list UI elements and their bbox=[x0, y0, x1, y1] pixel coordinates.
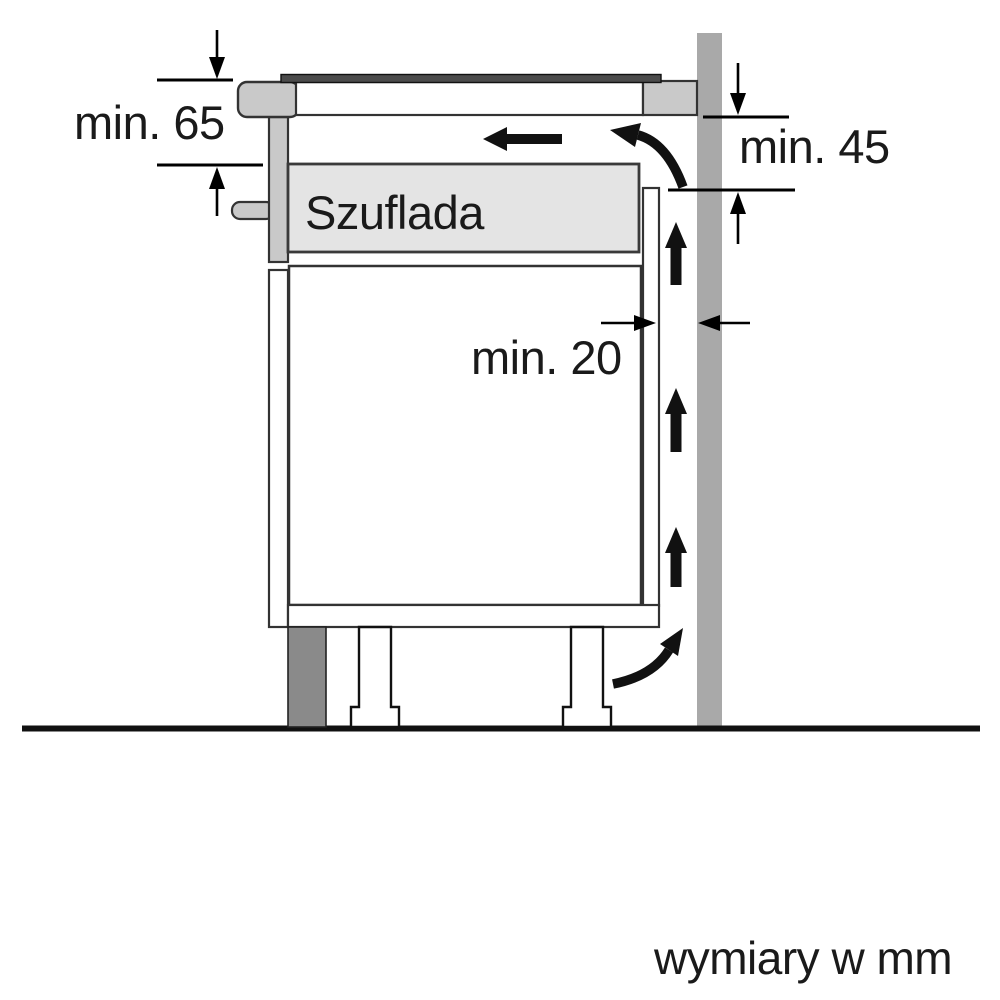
min-20-label: min. 20 bbox=[471, 331, 622, 384]
floor-line bbox=[22, 726, 980, 732]
airflow-up-arrow-icon bbox=[665, 222, 687, 285]
wall-panel bbox=[697, 33, 722, 726]
fixing-bracket bbox=[232, 202, 274, 219]
plinth-panel bbox=[288, 627, 326, 727]
cabinet-side-panel-upper bbox=[269, 117, 288, 262]
airflow-up-arrow-icon bbox=[665, 527, 687, 587]
ventilation-spacer-rail bbox=[643, 188, 659, 606]
hob-body bbox=[296, 82, 643, 115]
worktop-rear-block bbox=[643, 81, 697, 115]
installation-diagram: Szuflada min. 65 bbox=[0, 0, 1000, 1000]
arrow-down-icon bbox=[209, 57, 225, 79]
cabinet-bottom-panel bbox=[288, 605, 659, 627]
airflow-up-arrow-icon bbox=[665, 388, 687, 452]
cabinet-leg-front bbox=[351, 627, 399, 727]
airflow-left-arrow-icon bbox=[483, 127, 562, 151]
cabinet-side-panel-lower bbox=[269, 270, 288, 627]
arrow-down-icon bbox=[730, 93, 746, 115]
worktop-front-trim bbox=[238, 82, 299, 117]
cabinet-leg-rear bbox=[563, 627, 611, 727]
units-caption: wymiary w mm bbox=[653, 932, 952, 984]
hob-glass-top bbox=[281, 75, 661, 83]
arrow-up-icon bbox=[730, 192, 746, 214]
min-45-label: min. 45 bbox=[739, 120, 890, 173]
drawer-label: Szuflada bbox=[305, 186, 485, 239]
arrow-up-icon bbox=[209, 167, 225, 189]
min-65-label: min. 65 bbox=[74, 96, 225, 149]
cabinet-interior bbox=[289, 266, 641, 605]
airflow-curved-bottom-arrow-icon bbox=[613, 628, 683, 684]
